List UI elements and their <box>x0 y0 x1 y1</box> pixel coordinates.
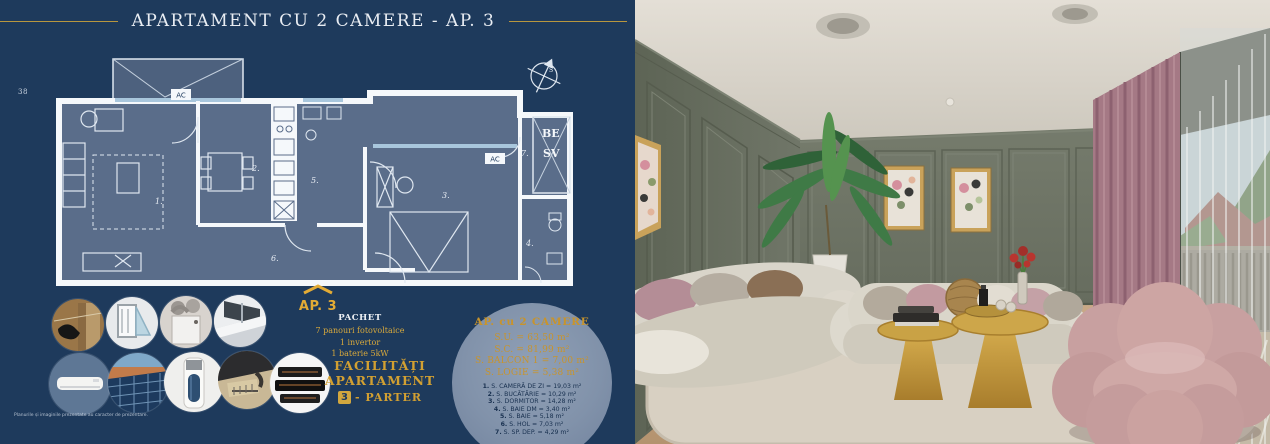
left-panel: APARTAMENT CU 2 CAMERE - AP. 3 38 <box>0 0 635 444</box>
book <box>898 306 934 313</box>
candle <box>996 300 1006 310</box>
area-line: S. BALCON 1 = 7,00 m² <box>452 356 612 368</box>
svg-text:3.: 3. <box>442 191 450 200</box>
room-area-item: 4. S. BAIE DM = 3,40 m² <box>452 406 612 414</box>
page-number: 38 <box>18 88 28 96</box>
room-area-item: 2. S. BUCĂTĂRIE = 10,29 m² <box>452 391 612 399</box>
window-band <box>303 98 343 102</box>
apartment-details-circle: AP. cu 2 CAMERE S.U. = 63,50 m² S.C. = 8… <box>452 303 612 444</box>
svg-text:2.: 2. <box>251 164 260 173</box>
pillow <box>1043 291 1083 321</box>
room-area-item: 5. S. BAIE = 5,18 m² <box>452 413 612 421</box>
svg-text:4.: 4. <box>525 239 534 248</box>
room-area-item: 7. S. SP. DEP. = 4,29 m² <box>452 429 612 437</box>
chevron-up-icon <box>301 284 335 295</box>
wall-artwork-back-1 <box>884 166 924 230</box>
facilities-block: FACILITĂȚI APARTAMENT 3 - PARTER <box>322 358 438 404</box>
area-line: S. LOGIE = 5,38 m² <box>452 368 612 380</box>
floor-number-badge: 3 <box>338 391 351 404</box>
page-title: APARTAMENT CU 2 CAMERE - AP. 3 <box>132 11 496 31</box>
floor-label: - PARTER <box>355 391 422 404</box>
apartment-outline <box>59 93 570 283</box>
compass-icon: S <box>520 57 568 100</box>
package-block: PACHET 7 panouri fotovoltaice 1 invertor… <box>298 313 422 360</box>
wall-artwork-back-2 <box>951 168 991 232</box>
room-area-item: 6. S. HOL = 7,03 m² <box>452 421 612 429</box>
pvc-window-profile-photo <box>106 297 158 349</box>
facilities-line1: FACILITĂȚI <box>322 358 438 373</box>
area-line: S.U. = 63,50 m² <box>452 333 612 345</box>
package-heading: PACHET <box>298 313 422 323</box>
air-conditioner-photo <box>49 353 111 415</box>
apartment-marker: AP. 3 <box>291 280 345 314</box>
room-area-item: 1. S. CAMERĂ DE ZI = 19,03 m² <box>452 383 612 391</box>
room-areas-list: 1. S. CAMERĂ DE ZI = 19,03 m² 2. S. BUCĂ… <box>452 383 612 436</box>
kitchen-counter <box>271 103 297 221</box>
book <box>895 322 939 326</box>
candle <box>1006 302 1016 312</box>
svg-text:7.: 7. <box>521 149 529 158</box>
package-item: 7 panouri fotovoltaice <box>298 325 422 337</box>
book <box>893 313 939 322</box>
details-heading: AP. cu 2 CAMERE <box>452 316 612 328</box>
svg-text:SV: SV <box>543 147 560 160</box>
thermal-insulation-photo <box>52 299 104 351</box>
svg-text:5.: 5. <box>311 176 319 185</box>
heating-film-photo <box>270 353 330 413</box>
ventilation-unit-photo <box>160 296 212 348</box>
plan-disclaimer: Planurile și imaginile prezentate au car… <box>14 413 148 418</box>
compass-south-label: S <box>549 67 553 74</box>
svg-text:6.: 6. <box>271 254 279 263</box>
facilities-line2: APARTAMENT <box>322 373 438 388</box>
wall-artwork-left <box>635 135 661 240</box>
window-band <box>373 144 517 148</box>
modern-balcony-photo <box>214 295 266 347</box>
room-area-item: 3. S. DORMITOR = 14,28 m² <box>452 398 612 406</box>
apartment-marker-label: AP. 3 <box>291 299 345 314</box>
living-room-render <box>635 0 1270 444</box>
title-row: APARTAMENT CU 2 CAMERE - AP. 3 <box>0 11 635 31</box>
svg-text:1.: 1. <box>155 197 163 206</box>
perfume-bottle <box>979 289 988 306</box>
title-rule-right <box>509 21 627 22</box>
svg-text:BE: BE <box>542 127 560 140</box>
area-line: S.C. = 81,99 m² <box>452 345 612 357</box>
package-item: 1 invertor <box>298 337 422 349</box>
heat-pump-boiler-photo <box>164 352 224 412</box>
solar-panels-photo <box>108 353 168 413</box>
ac-label: AC <box>490 156 500 164</box>
ceiling-spot <box>946 98 954 106</box>
floor-plan: AC AC S 1. 2. 3. 4. <box>55 57 575 292</box>
brochure-page: APARTAMENT CU 2 CAMERE - AP. 3 38 <box>0 0 1270 444</box>
title-rule-left <box>0 21 118 22</box>
technical-drawing-photo <box>218 351 276 409</box>
ac-label: AC <box>176 92 186 100</box>
